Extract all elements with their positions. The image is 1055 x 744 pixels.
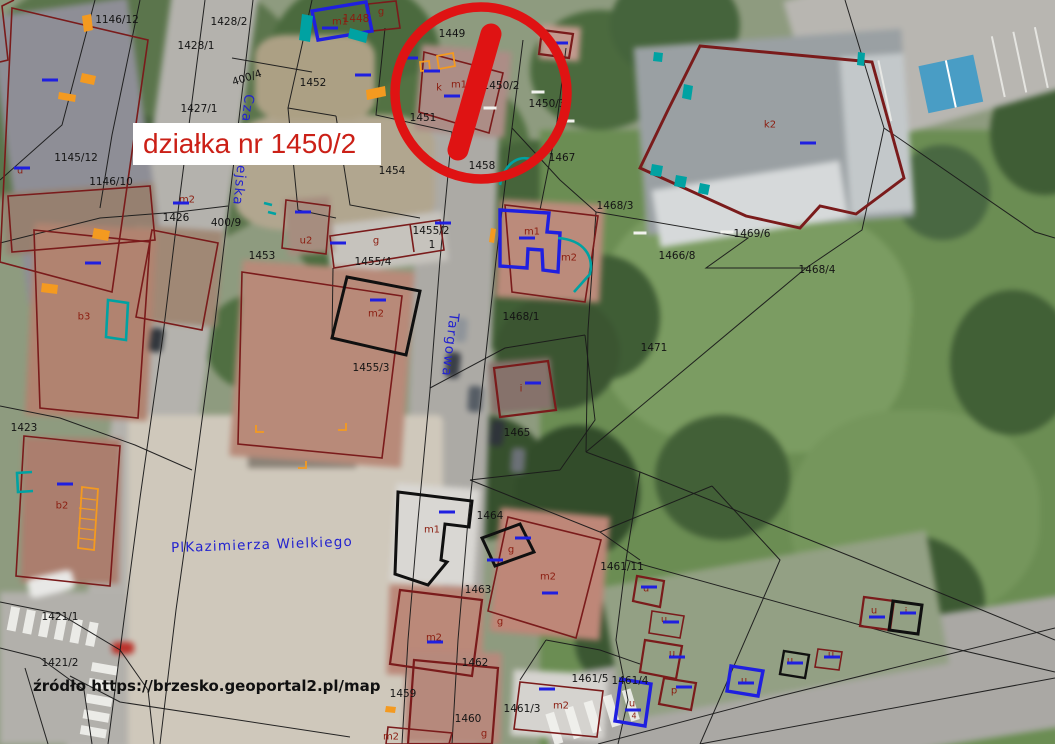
building-code-label: b3	[78, 312, 91, 323]
parcel-label: 1466/8	[659, 250, 696, 262]
ownership-mark	[787, 662, 803, 665]
building-code-label: g	[373, 236, 379, 247]
parcel-callout-text: działka nr 1450/2	[133, 123, 381, 165]
ownership-mark	[900, 612, 916, 615]
parcel-label: 1468/1	[503, 311, 540, 323]
survey-mark	[562, 120, 575, 123]
parcel-label: 1423	[11, 422, 38, 434]
parcel-label: 1428/2	[211, 16, 248, 28]
building-code-label: i	[520, 384, 523, 395]
parcel-label: 1458	[469, 160, 496, 172]
building-code-label: m2	[383, 732, 399, 743]
ownership-mark	[427, 641, 443, 644]
parcel-label: 1465	[504, 427, 531, 439]
ownership-mark	[519, 237, 535, 240]
parcel-callout: działka nr 1450/2	[133, 123, 381, 165]
survey-mark	[532, 91, 545, 94]
street-name-label: Targowa	[438, 312, 462, 378]
building-code-label: m2	[553, 701, 569, 712]
parcel-label: 1461/3	[504, 703, 541, 715]
ownership-mark	[869, 616, 885, 619]
building-code-label: m2	[561, 253, 577, 264]
ownership-mark	[402, 57, 418, 60]
parcel-label: 1459	[390, 688, 417, 700]
ownership-mark	[370, 299, 386, 302]
ownership-mark	[542, 592, 558, 595]
parcel-label: 1453	[249, 250, 276, 262]
ownership-mark	[295, 211, 311, 214]
building-code-label: m2	[540, 572, 556, 583]
parcel-label: 1460	[455, 713, 482, 725]
ownership-mark	[487, 559, 503, 562]
parcel-label: 1451	[410, 112, 437, 124]
survey-mark	[484, 107, 497, 110]
map-labels-layer: 1146/121428/21428/1400/41427/11448144914…	[0, 0, 1055, 744]
parcel-label: 1421/2	[42, 657, 79, 669]
parcel-label: 1469/6	[734, 228, 771, 240]
ownership-mark	[824, 656, 840, 659]
parcel-label: 1426	[163, 212, 190, 224]
parcel-label: 1	[429, 239, 436, 251]
parcel-label: 1450/2	[483, 80, 520, 92]
parcel-label: 1463	[465, 584, 492, 596]
street-name-label: PlKazimierza Wielkiego	[171, 534, 353, 556]
map-canvas[interactable]: 1146/121428/21428/1400/41427/11448144914…	[0, 0, 1055, 744]
parcel-label: 1146/10	[89, 176, 133, 188]
ownership-mark	[625, 709, 641, 712]
ownership-mark	[355, 74, 371, 77]
ownership-mark	[444, 95, 460, 98]
parcel-label: 1462	[462, 657, 489, 669]
ownership-mark	[173, 202, 189, 205]
building-code-label: k2	[764, 120, 776, 131]
parcel-label: 1454	[379, 165, 406, 177]
parcel-label: 1428/1	[178, 40, 215, 52]
ownership-mark	[525, 382, 541, 385]
parcel-label: 1471	[641, 342, 668, 354]
parcel-label: 1421/1	[42, 611, 79, 623]
parcel-label: 1455/4	[355, 256, 392, 268]
survey-mark	[721, 231, 734, 234]
ownership-mark	[663, 621, 679, 624]
parcel-label: 400/4	[231, 68, 263, 89]
parcel-label: 1450/3	[529, 98, 566, 110]
parcel-label: 1146/12	[95, 14, 139, 26]
ownership-mark	[669, 656, 685, 659]
ownership-mark	[800, 142, 816, 145]
ownership-mark	[552, 42, 568, 45]
building-code-label: m2	[368, 309, 384, 320]
building-code-label: u2	[300, 236, 313, 247]
parcel-label: 1464	[477, 510, 504, 522]
parcel-label: 1455/3	[353, 362, 390, 374]
parcel-label: 1468/4	[799, 264, 836, 276]
building-code-label: g	[481, 729, 487, 740]
building-code-label: g	[497, 617, 503, 628]
ownership-mark	[322, 27, 338, 30]
ownership-mark	[515, 537, 531, 540]
parcel-label: 1145/12	[54, 152, 98, 164]
source-attribution: źródło https://brzesko.geoportal2.pl/map	[33, 677, 381, 695]
survey-mark	[634, 232, 647, 235]
building-code-label: 4	[631, 712, 636, 721]
parcel-label: 1455/2	[413, 225, 450, 237]
ownership-mark	[676, 686, 692, 689]
parcel-label: 1449	[439, 28, 466, 40]
building-code-label: m1	[451, 80, 467, 91]
parcel-label: 400/9	[211, 217, 241, 229]
parcel-label: 1461/5	[572, 673, 609, 685]
parcel-label: 1468/3	[597, 200, 634, 212]
ownership-mark	[424, 70, 440, 73]
ownership-mark	[330, 242, 346, 245]
building-code-label: b2	[56, 501, 69, 512]
ownership-mark	[641, 586, 657, 589]
ownership-mark	[57, 483, 73, 486]
building-code-label: m1	[424, 525, 440, 536]
ownership-mark	[85, 262, 101, 265]
building-code-label: k	[436, 83, 442, 94]
parcel-label: 1461/4	[612, 675, 649, 687]
ownership-mark	[435, 222, 451, 225]
parcel-label: 1461/11	[600, 561, 644, 573]
ownership-mark	[42, 79, 58, 82]
ownership-mark	[14, 167, 30, 170]
parcel-label: 1452	[300, 77, 327, 89]
ownership-mark	[439, 511, 455, 514]
ownership-mark	[539, 688, 555, 691]
building-code-label: g	[378, 7, 384, 18]
parcel-label: 1427/1	[181, 103, 218, 115]
parcel-label: 1467	[549, 152, 576, 164]
ownership-mark	[738, 682, 754, 685]
building-code-label: g	[508, 545, 514, 556]
